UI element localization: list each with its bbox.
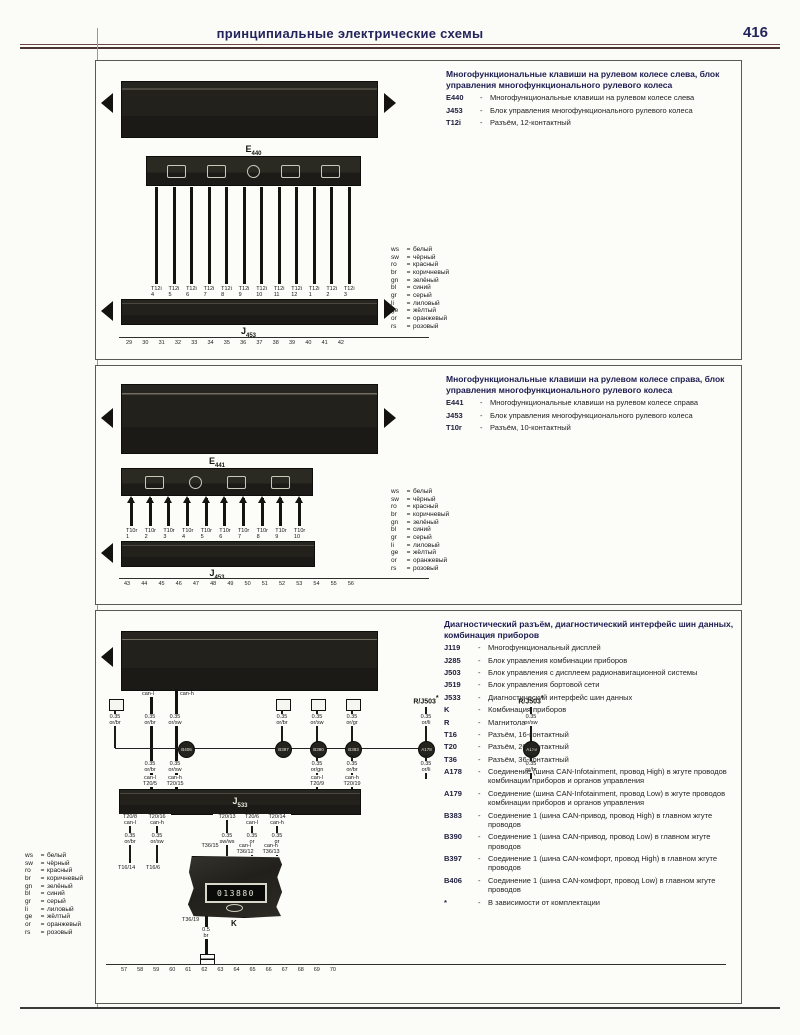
wire: T12i 5	[169, 187, 181, 299]
can-wire	[150, 689, 153, 789]
legend-item: E440 - Многофункциональные клавиши на ру…	[446, 93, 738, 102]
track-number: 67	[282, 967, 288, 973]
wire-gauge-label: 0.35or/gr	[338, 714, 366, 726]
wire-color-row: br=коричневый	[25, 875, 83, 883]
connector-end-label: T16/6	[146, 865, 160, 871]
wire-color-row: ws=белый	[25, 852, 83, 860]
track-number: 49	[227, 581, 233, 587]
wire-pin-label: T12i 10	[256, 287, 267, 299]
button-icon	[271, 476, 290, 489]
wire-gauge-label: 0.35or/br	[116, 833, 144, 845]
wire-pin-label: T12i 1	[309, 287, 320, 299]
legend-item: T16 - Разъём, 16-контактный	[444, 730, 736, 739]
wire: T12i 1	[309, 187, 321, 299]
wire-color-row: ge=жёлтый	[391, 307, 449, 315]
wire-line	[330, 187, 333, 284]
wire: T12i 10	[256, 187, 268, 299]
cluster-pin-label: T36/19	[182, 917, 199, 923]
panel-title: Диагностический разъём, диагностический …	[444, 619, 736, 640]
legend-item: J519 - Блок управления бортовой сети	[444, 680, 736, 689]
wire-color-row: or=оранжевый	[25, 921, 83, 929]
legend-item: T10r - Разъём, 10-контактный	[446, 423, 738, 432]
wire-pin-label: T10r 7	[238, 529, 249, 541]
component-list: J119 - Многофункциональный дисплей J285 …	[444, 643, 736, 907]
manual-page: принципиальные электрические схемы 416 E…	[0, 0, 800, 1035]
cluster-button-icon	[226, 904, 243, 912]
panel2-info: Многофункциональные клавиши на рулевом к…	[446, 374, 738, 435]
wire-color-row: or=оранжевый	[391, 557, 449, 565]
track-number: 45	[158, 581, 164, 587]
track-number: 51	[262, 581, 268, 587]
track-number: 59	[153, 967, 159, 973]
panel-steering-wheel-right: E441 T10r 1 T10r 2	[95, 365, 742, 605]
track-number: 52	[279, 581, 285, 587]
control-unit-bar-j453	[121, 299, 378, 325]
legend-item: J285 - Блок управления комбинации прибор…	[444, 656, 736, 665]
wire-color-row: ro=красный	[391, 261, 449, 269]
connector-icon	[109, 699, 124, 711]
continuation-arrow-left-icon	[101, 647, 113, 667]
track-number: 37	[256, 340, 262, 346]
odometer-display: 013880	[205, 883, 267, 903]
legend-item: T36 - Разъём, 36-контактный	[444, 755, 736, 764]
pin-label: can-hT20/19	[338, 775, 366, 787]
wire-line	[279, 498, 282, 526]
wire-group: T12i 4 T12i 5 T12i 6 T12i 7	[151, 187, 356, 299]
panel1-info: Многофункциональные клавиши на рулевом к…	[446, 69, 738, 130]
wire-gauge-label: 0.35or/gn	[303, 761, 331, 773]
wire-line	[190, 187, 193, 284]
connector-icon	[346, 699, 361, 711]
wire-pin-label: T12i 8	[221, 287, 232, 299]
wire-color-row: bl=синий	[391, 526, 449, 534]
track-number: 42	[338, 340, 344, 346]
wire-color-row: ws=белый	[391, 488, 449, 496]
can-junction: B383	[345, 741, 362, 758]
can-wire	[175, 689, 178, 789]
wire-line	[223, 498, 226, 526]
wire-color-row: gr=серый	[391, 534, 449, 542]
pin-label: can-hT36/13	[257, 843, 285, 855]
track-number: 41	[322, 340, 328, 346]
wire: T10r 4	[182, 498, 194, 541]
track-number: 64	[233, 967, 239, 973]
button-icon	[207, 165, 226, 178]
component-label-j533: J533	[232, 796, 247, 809]
wire-pin-label: T12i 9	[239, 287, 250, 299]
wire-line	[295, 187, 298, 284]
component-list: E440 - Многофункциональные клавиши на ру…	[446, 93, 738, 127]
track-number: 40	[305, 340, 311, 346]
gateway-bar-j533: J533	[119, 789, 361, 815]
wire-pin-label: T10r 5	[201, 529, 212, 541]
wiring-harness-bar-j519	[121, 631, 378, 691]
legend-item: B397 - Соединение 1 (шина CAN-комфорт, п…	[444, 854, 736, 873]
track-number: 50	[245, 581, 251, 587]
instrument-cluster-block: 013880	[188, 856, 282, 918]
legend-item: B406 - Соединение 1 (шина CAN-комфорт, п…	[444, 876, 736, 895]
pin-label: T20/13	[213, 814, 241, 820]
pin-label: T20/6can-l	[238, 814, 266, 826]
track-number: 29	[126, 340, 132, 346]
wire-line	[298, 498, 301, 526]
wire: T10r 5	[201, 498, 213, 541]
track-numbers: 5758596061626364656667686970	[121, 967, 336, 973]
page-number: 416	[743, 24, 768, 41]
keypad-block-e441	[121, 468, 313, 496]
legend-item: A179 - Соединение (шина CAN-Infotainment…	[444, 789, 736, 808]
connector-end-label: T16/14	[118, 865, 135, 871]
pin-label: can-lT36/12	[231, 843, 259, 855]
wire-pin-label: T12i 5	[169, 287, 180, 299]
wire-pin-label: T10r 10	[294, 529, 305, 541]
track-number: 32	[175, 340, 181, 346]
wire: T12i 11	[274, 187, 286, 299]
track-number: 54	[313, 581, 319, 587]
button-icon	[321, 165, 340, 178]
wire-color-legend: ws=белый sw=чёрный ro=красный br=коричне…	[391, 488, 449, 572]
track-number: 31	[159, 340, 165, 346]
track-rule	[119, 337, 429, 338]
legend-item: K - Комбинация приборов	[444, 705, 736, 714]
track-number: 46	[176, 581, 182, 587]
panel-steering-wheel-left: E440 T12i 4 T12i 5	[95, 60, 742, 360]
wire-gauge-label: 0.35or/br	[338, 761, 366, 773]
wire: T12i 9	[239, 187, 251, 299]
wire-color-row: rs=розовый	[391, 323, 449, 331]
button-icon	[227, 476, 246, 489]
wire-pin-label: T12i 11	[274, 287, 285, 299]
header-rule	[20, 44, 780, 45]
wire: T10r 2	[145, 498, 157, 541]
pin-label: T36/15	[196, 843, 224, 849]
wire-gauge-label: 0.35or/br	[268, 714, 296, 726]
legend-item: J119 - Многофункциональный дисплей	[444, 643, 736, 652]
legend-item: T12i - Разъём, 12-контактный	[446, 118, 738, 127]
legend-item: J453 - Блок управления многофункциональн…	[446, 106, 738, 115]
track-rule	[106, 964, 726, 965]
track-number: 30	[142, 340, 148, 346]
component-label-e440: E440	[146, 144, 361, 157]
can-junction: B397	[275, 741, 292, 758]
legend-item: * - В зависимости от комплектации	[444, 898, 736, 907]
panel-title: Многофункциональные клавиши на рулевом к…	[446, 69, 738, 90]
page-header-title: принципиальные электрические схемы	[0, 26, 700, 41]
wire: T10r 8	[257, 498, 269, 541]
wire-line	[225, 187, 228, 284]
track-number: 34	[207, 340, 213, 346]
track-number: 38	[273, 340, 279, 346]
wire: T12i 7	[204, 187, 216, 299]
can-bus-line	[115, 748, 431, 749]
wire-pin-label: T12i 3	[344, 287, 355, 299]
component-label-k: K	[231, 919, 237, 928]
wire-gauge-label: 0.35or/br	[136, 714, 164, 726]
pin-label: T20/8can-l	[116, 814, 144, 826]
wire-pin-label: T10r 6	[219, 529, 230, 541]
wire: T12i 3	[344, 187, 356, 299]
track-number: 35	[224, 340, 230, 346]
wire: T12i 12	[291, 187, 303, 299]
track-number: 61	[185, 967, 191, 973]
wire-pin-label: T10r 3	[163, 529, 174, 541]
track-number: 62	[201, 967, 207, 973]
legend-item: T20 - Разъём, 20-контактный	[444, 742, 736, 751]
wire-line	[313, 187, 316, 284]
wire-line	[155, 187, 158, 284]
keypad-block-e440	[146, 156, 361, 186]
track-number: 58	[137, 967, 143, 973]
wire-color-row: bl=синий	[25, 890, 83, 898]
pin-label: can-lT20/9	[303, 775, 331, 787]
button-icon	[167, 165, 186, 178]
wire: T10r 6	[219, 498, 231, 541]
wire-color-row: br=коричневый	[391, 269, 449, 277]
legend-item: J533 - Диагностический интерфейс шин дан…	[444, 693, 736, 702]
track-number: 60	[169, 967, 175, 973]
wire-color-row: ro=красный	[25, 867, 83, 875]
wire-gauge-label: 0.5br	[192, 927, 220, 939]
track-number: 48	[210, 581, 216, 587]
wire-line	[167, 498, 170, 526]
track-numbers: 2930313233343536373839404142	[126, 340, 344, 346]
wire-pin-label: T10r 9	[275, 529, 286, 541]
legend-item: B390 - Соединение 1 (шина CAN-привод, пр…	[444, 832, 736, 851]
wire-gauge-label: 0.35or/sw	[161, 761, 189, 773]
wire-pin-label: T10r 1	[126, 529, 137, 541]
page-bottom-rule	[20, 1007, 780, 1009]
pin-label: T20/14can-h	[263, 814, 291, 826]
wire-color-row: ge=жёлтый	[391, 549, 449, 557]
wire-group: T10r 1 T10r 2 T10r 3 T10r 4	[126, 498, 306, 541]
wire-line	[149, 498, 152, 526]
wire-color-row: bl=синий	[391, 284, 449, 292]
panel3-info: Диагностический разъём, диагностический …	[444, 619, 736, 910]
wire: T12i 6	[186, 187, 198, 299]
wire: T10r 10	[294, 498, 306, 541]
wire-gauge-label: 0.35or/sw	[143, 833, 171, 845]
wire: T10r 3	[163, 498, 175, 541]
track-number: 57	[121, 967, 127, 973]
wire-gauge-label: 0.35or/br	[136, 761, 164, 773]
control-unit-bar-j453	[121, 541, 315, 567]
track-number: 66	[266, 967, 272, 973]
can-junction: B390	[310, 741, 327, 758]
wire-gauge-label: 0.35or/li	[412, 714, 440, 726]
wire-gauge-label: 0.35or/sw	[303, 714, 331, 726]
continuation-arrow-left-icon	[101, 543, 113, 563]
panel-diagnostic-interface: can-l can-h R/J503* R/J503* 0.35or/br 0.…	[95, 610, 742, 1004]
wire: T12i 8	[221, 187, 233, 299]
wire-color-row: rs=розовый	[25, 929, 83, 937]
legend-item: J503 - Блок управления с дисплеем радион…	[444, 668, 736, 677]
track-number: 69	[314, 967, 320, 973]
wire-pin-label: T12i 2	[326, 287, 337, 299]
legend-item: E441 - Многофункциональные клавиши на ру…	[446, 398, 738, 407]
wire-color-row: rs=розовый	[391, 565, 449, 573]
connector-icon	[276, 699, 291, 711]
wire-pin-label: T12i 6	[186, 287, 197, 299]
continuation-arrow-left-icon	[101, 408, 113, 428]
legend-item: B383 - Соединение 1 (шина CAN-привод, пр…	[444, 811, 736, 830]
can-junction: B406	[178, 741, 195, 758]
can-wire-label: can-l	[142, 691, 154, 697]
wire-line	[243, 187, 246, 284]
track-numbers: 4344454647484950515253545556	[124, 581, 354, 587]
pin-label: can-lT20/5	[136, 775, 164, 787]
wire-line	[242, 498, 245, 526]
wire-line	[205, 498, 208, 526]
wire: T10r 1	[126, 498, 138, 541]
connector-icon	[311, 699, 326, 711]
track-number: 63	[217, 967, 223, 973]
wire-line	[173, 187, 176, 284]
wire-color-legend: ws=белый sw=чёрный ro=красный br=коричне…	[25, 852, 83, 936]
wire-pin-label: T10r 4	[182, 529, 193, 541]
wire-color-row: gr=серый	[391, 292, 449, 300]
track-number: 44	[141, 581, 147, 587]
wire-pin-label: T10r 2	[145, 529, 156, 541]
track-number: 33	[191, 340, 197, 346]
wire-gauge-label: 0.35or/br	[101, 714, 129, 726]
legend-item: J453 - Блок управления многофункциональн…	[446, 411, 738, 420]
wire: T12i 4	[151, 187, 163, 299]
track-number: 47	[193, 581, 199, 587]
wire-line	[208, 187, 211, 284]
wire: T10r 7	[238, 498, 250, 541]
panel-title: Многофункциональные клавиши на рулевом к…	[446, 374, 738, 395]
continuation-arrow-left-icon	[101, 301, 113, 321]
wire-gauge-label: 0.35or/li	[412, 761, 440, 773]
scroll-wheel-icon	[247, 165, 260, 178]
legend-item: A178 - Соединение (шина CAN-Infotainment…	[444, 767, 736, 786]
scroll-wheel-icon	[189, 476, 202, 489]
wire-line	[348, 187, 351, 284]
track-number: 39	[289, 340, 295, 346]
track-number: 53	[296, 581, 302, 587]
track-number: 65	[250, 967, 256, 973]
track-number: 68	[298, 967, 304, 973]
wire-pin-label: T12i 12	[291, 287, 302, 299]
can-wire-label: can-h	[180, 691, 194, 697]
wire: T12i 2	[326, 187, 338, 299]
wire-pin-label: T10r 8	[257, 529, 268, 541]
track-number: 70	[330, 967, 336, 973]
track-number: 56	[348, 581, 354, 587]
wire-pin-label: T12i 4	[151, 287, 162, 299]
track-rule	[119, 578, 429, 579]
wire-color-row: ge=жёлтый	[25, 913, 83, 921]
wire: T10r 9	[275, 498, 287, 541]
continuation-arrow-right-icon	[384, 93, 396, 113]
wiring-harness-bar	[121, 384, 378, 454]
continuation-arrow-right-icon	[384, 408, 396, 428]
wire-color-row: ws=белый	[391, 246, 449, 254]
track-number: 43	[124, 581, 130, 587]
wire-color-row: gr=серый	[25, 898, 83, 906]
header-rule-thick	[20, 47, 780, 49]
wire-line	[260, 187, 263, 284]
wire-gauge-label: 0.35or/sw	[161, 714, 189, 726]
continuation-arrow-left-icon	[101, 93, 113, 113]
wire-line	[130, 498, 133, 526]
wire-color-row: br=коричневый	[391, 511, 449, 519]
button-icon	[145, 476, 164, 489]
pin-label: can-hT20/15	[161, 775, 189, 787]
wire-color-row: or=оранжевый	[391, 315, 449, 323]
track-number: 36	[240, 340, 246, 346]
button-icon	[281, 165, 300, 178]
wire-line	[261, 498, 264, 526]
wire-color-row: ro=красный	[391, 503, 449, 511]
pin-label: T20/16can-h	[143, 814, 171, 826]
wiring-harness-bar	[121, 81, 378, 138]
wire-pin-label: T12i 7	[204, 287, 215, 299]
wire-line	[186, 498, 189, 526]
wire-color-legend: ws=белый sw=чёрный ro=красный br=коричне…	[391, 246, 449, 330]
component-list: E441 - Многофункциональные клавиши на ру…	[446, 398, 738, 432]
track-number: 55	[331, 581, 337, 587]
component-label-e441: E441	[121, 456, 313, 469]
wire-line	[278, 187, 281, 284]
legend-item: R - Магнитола	[444, 718, 736, 727]
